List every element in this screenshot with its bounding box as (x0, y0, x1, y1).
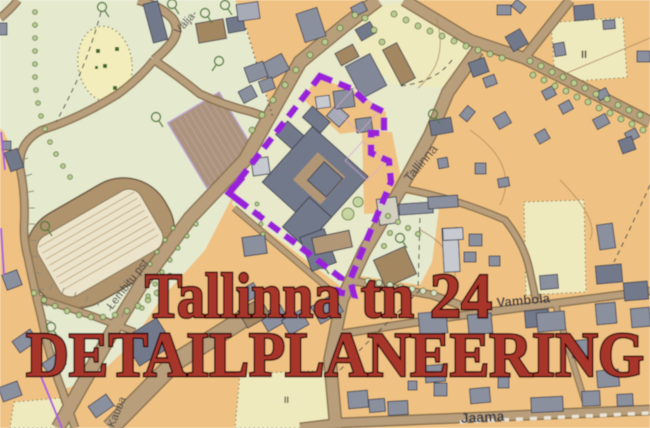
svg-text:DETAILPLANEERING: DETAILPLANEERING (26, 320, 644, 390)
svg-text:Jaama: Jaama (460, 408, 505, 426)
svg-text:II: II (581, 49, 587, 61)
svg-text:II: II (284, 395, 289, 405)
